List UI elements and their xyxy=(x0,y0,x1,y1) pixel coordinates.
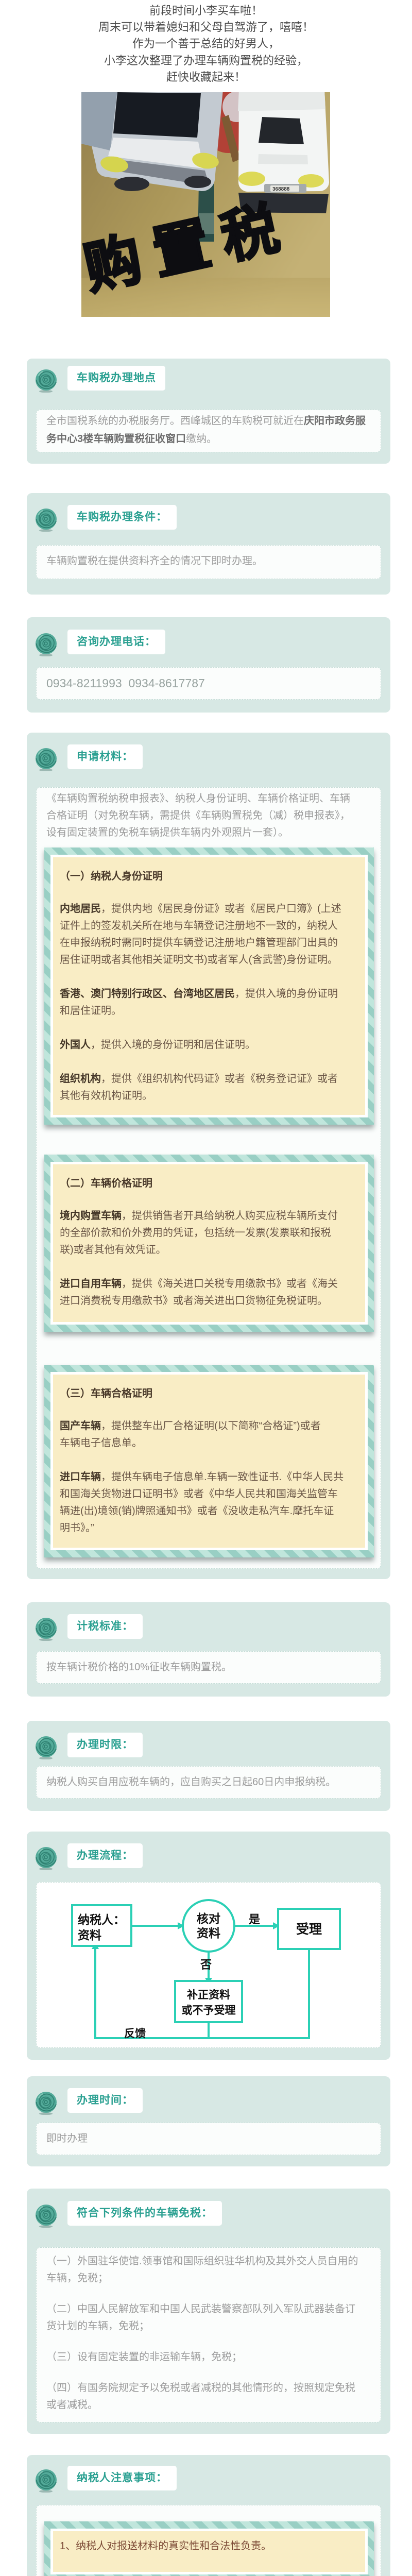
svg-text:资料: 资料 xyxy=(197,1926,220,1940)
svg-text:368888: 368888 xyxy=(272,187,290,192)
svg-text:补正资料: 补正资料 xyxy=(186,1989,230,2001)
svg-text:反馈: 反馈 xyxy=(124,2027,146,2040)
svg-text:核对: 核对 xyxy=(197,1912,220,1925)
svg-text:受理: 受理 xyxy=(296,1922,322,1937)
svg-text:资料: 资料 xyxy=(78,1928,101,1942)
svg-text:或不予受理: 或不予受理 xyxy=(182,2004,236,2016)
svg-text:是: 是 xyxy=(249,1913,260,1926)
svg-text:否: 否 xyxy=(200,1958,212,1971)
svg-text:纳税人：: 纳税人： xyxy=(78,1913,125,1926)
